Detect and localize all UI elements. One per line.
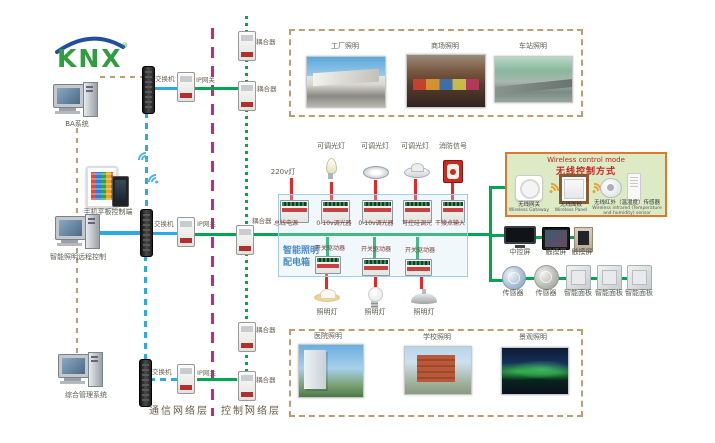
wireless-item-zh: 无线面板 xyxy=(551,200,591,208)
knx-logo: KNX ® xyxy=(55,36,135,76)
feed-label: 消防信号 xyxy=(436,143,470,151)
factory-photo xyxy=(306,56,386,108)
wireless-item-label: 无线面板 Wireless Panel xyxy=(551,200,591,213)
wireless-gateway-icon xyxy=(515,175,543,201)
ip-gateway xyxy=(177,364,195,394)
wireless-signal-icon xyxy=(543,180,560,197)
driver-label: 开关驱动器 xyxy=(310,246,350,253)
switch-actuator-module xyxy=(405,259,432,276)
remote-control-label: 智能照明远程控制 xyxy=(36,254,120,262)
coupler-label: 耦合器 xyxy=(257,86,277,93)
power-line xyxy=(420,275,423,289)
screen-label: 中控屏 xyxy=(505,249,535,257)
lamp-label: 照明灯 xyxy=(409,309,439,317)
management-label: 综合管理系统 xyxy=(50,392,122,400)
coupler xyxy=(236,225,254,255)
sensor-icon xyxy=(502,266,526,290)
comm-network-layer-label: 通信网络层 xyxy=(149,402,209,417)
mgmt-line-h xyxy=(100,76,142,78)
switch-label: 交换机 xyxy=(154,221,174,228)
knx-lighting-system-diagram: KNX ® BA系统 手机平板控制端 智能照明远程控制 综合管理系统 交换机 I… xyxy=(0,0,715,443)
module-label: 可控硅调光 xyxy=(398,221,436,228)
management-computer xyxy=(58,352,105,392)
coupler xyxy=(238,322,256,352)
screen-label: 触摸屏 xyxy=(569,249,595,257)
downlight-icon xyxy=(363,166,389,179)
pc-tower-icon xyxy=(85,214,100,249)
knx-bus-line xyxy=(491,234,505,237)
module-label: 干接点输入 xyxy=(432,221,468,228)
monitor-stand xyxy=(59,108,76,111)
wireless-item-zh: 无线网关 xyxy=(507,200,551,208)
sensor-label: 传感器 xyxy=(500,290,526,298)
ceiling-lamp-icon xyxy=(314,289,340,303)
ip-gateway-label: IP网关 xyxy=(196,77,215,84)
feed-label: 可调光灯 xyxy=(358,143,392,151)
monitor-icon xyxy=(58,354,89,378)
phone-icon xyxy=(112,176,129,207)
network-switch xyxy=(139,359,152,407)
factory-lighting-label: 工厂照明 xyxy=(315,43,375,51)
wireless-item-en: Wireless infrared (Temperature and humid… xyxy=(591,206,663,216)
driver-label: 开关驱动器 xyxy=(356,247,396,254)
coupler-label: 耦合器 xyxy=(256,377,276,384)
smart-panel-icon xyxy=(597,265,622,290)
driver-label: 开关驱动器 xyxy=(400,248,440,255)
fire-alarm-icon xyxy=(443,160,463,183)
switch-label: 交换机 xyxy=(152,369,172,376)
module-label: 总线电源 xyxy=(268,221,304,228)
smart-panel-label: 智能面板 xyxy=(624,290,654,298)
lamp-label: 照明灯 xyxy=(360,309,390,317)
sensor-icon xyxy=(534,265,559,290)
knx-bus-line xyxy=(195,87,240,90)
smart-panel-icon xyxy=(566,265,591,290)
smart-panel-icon xyxy=(627,265,652,290)
smart-panel-label: 智能面板 xyxy=(594,290,624,298)
knx-trunk-line xyxy=(245,16,248,32)
feed-label: 220v灯 xyxy=(268,169,298,177)
coupler xyxy=(238,371,256,401)
knx-trunk-line xyxy=(245,59,248,82)
lan-line xyxy=(153,87,179,90)
wireless-item-label: 无线网关 Wireless Gateway xyxy=(507,200,551,213)
station-lighting-label: 车站照明 xyxy=(503,43,563,51)
station-photo xyxy=(494,56,573,103)
school-lighting-label: 学校照明 xyxy=(407,334,467,342)
switch-actuator-module xyxy=(315,256,341,274)
pc-tower-icon xyxy=(83,82,98,117)
coupler xyxy=(238,31,256,61)
wireless-item-label: 无线红外（温湿度）传感器 Wireless infrared (Temperat… xyxy=(591,198,663,216)
registered-mark: ® xyxy=(121,42,128,50)
smart-panel-label: 智能面板 xyxy=(563,290,593,298)
sensor-label: 传感器 xyxy=(533,290,559,298)
ba-system-label: BA系统 xyxy=(47,121,107,129)
lan-line xyxy=(150,232,178,235)
wireless-ir-sensor-icon xyxy=(600,178,622,198)
ip-gateway xyxy=(177,217,195,247)
module-label: 0-10v调光器 xyxy=(355,221,397,228)
knx-bus-line xyxy=(195,233,237,236)
lan-line xyxy=(149,378,178,381)
wireless-item-zh: 无线红外（温湿度）传感器 xyxy=(591,198,663,206)
wireless-item-en: Wireless Gateway xyxy=(507,208,551,213)
mall-lighting-label: 商场照明 xyxy=(415,43,475,51)
mobile-control-devices xyxy=(86,164,134,212)
wireless-title-en: Wireless control mode xyxy=(507,156,665,164)
knx-trunk-line xyxy=(245,109,248,225)
switch-label: 交换机 xyxy=(155,76,175,83)
mall-photo xyxy=(406,54,486,108)
coupler xyxy=(238,81,256,111)
central-control-screen-icon xyxy=(504,226,536,248)
wifi-icon xyxy=(135,149,158,172)
hospital-photo xyxy=(298,344,364,398)
cabinet-title-line2: 配电箱 xyxy=(283,258,310,268)
ctrl-network-layer-label: 控制网络层 xyxy=(221,402,281,417)
feed-label: 可调光灯 xyxy=(314,143,348,151)
dimmable-lamp-icon xyxy=(326,158,335,179)
school-photo xyxy=(404,346,472,395)
monitor-stand xyxy=(61,240,78,243)
knx-trunk-line xyxy=(245,253,248,322)
monitor-icon xyxy=(53,84,84,108)
ceiling-lamp-icon xyxy=(404,167,430,178)
ip-gateway xyxy=(177,72,195,102)
ip-gateway-label: IP网关 xyxy=(197,370,216,377)
coupler-label: 耦合器 xyxy=(256,327,276,334)
wifi-icon xyxy=(145,171,168,194)
lan-line xyxy=(144,255,147,359)
module-label: 0-10v调光器 xyxy=(313,221,355,228)
knx-logo-text: KNX xyxy=(57,44,123,73)
hospital-lighting-label: 医院照明 xyxy=(298,333,358,341)
network-switch xyxy=(142,66,155,114)
dish-lamp-icon xyxy=(411,289,437,305)
feed-label: 可调光灯 xyxy=(398,143,432,151)
pc-tower-icon xyxy=(88,352,103,387)
network-switch xyxy=(140,209,153,257)
ba-system-computer xyxy=(53,82,100,122)
landscape-photo xyxy=(501,347,569,395)
lamp-label: 照明灯 xyxy=(312,309,342,317)
landscape-lighting-label: 景观照明 xyxy=(503,334,563,342)
remote-control-computer xyxy=(55,214,102,254)
humidity-sensor-icon xyxy=(627,173,641,201)
wireless-item-en: Wireless Panel xyxy=(551,208,591,213)
monitor-icon xyxy=(55,216,86,240)
touch-screen-icon xyxy=(542,227,570,250)
switch-actuator-module xyxy=(362,258,390,276)
wireless-control-box: Wireless control mode 无线控制方式 无线网关 Wirele… xyxy=(505,152,667,217)
screen-label: 触摸屏 xyxy=(541,249,571,257)
bulb-lamp-icon xyxy=(368,287,382,308)
lan-line xyxy=(96,231,141,235)
knx-bus-line xyxy=(197,378,237,381)
ip-gateway-label: IP网关 xyxy=(197,221,216,228)
coupler-label: 耦合器 xyxy=(256,39,276,46)
monitor-stand xyxy=(64,378,81,381)
